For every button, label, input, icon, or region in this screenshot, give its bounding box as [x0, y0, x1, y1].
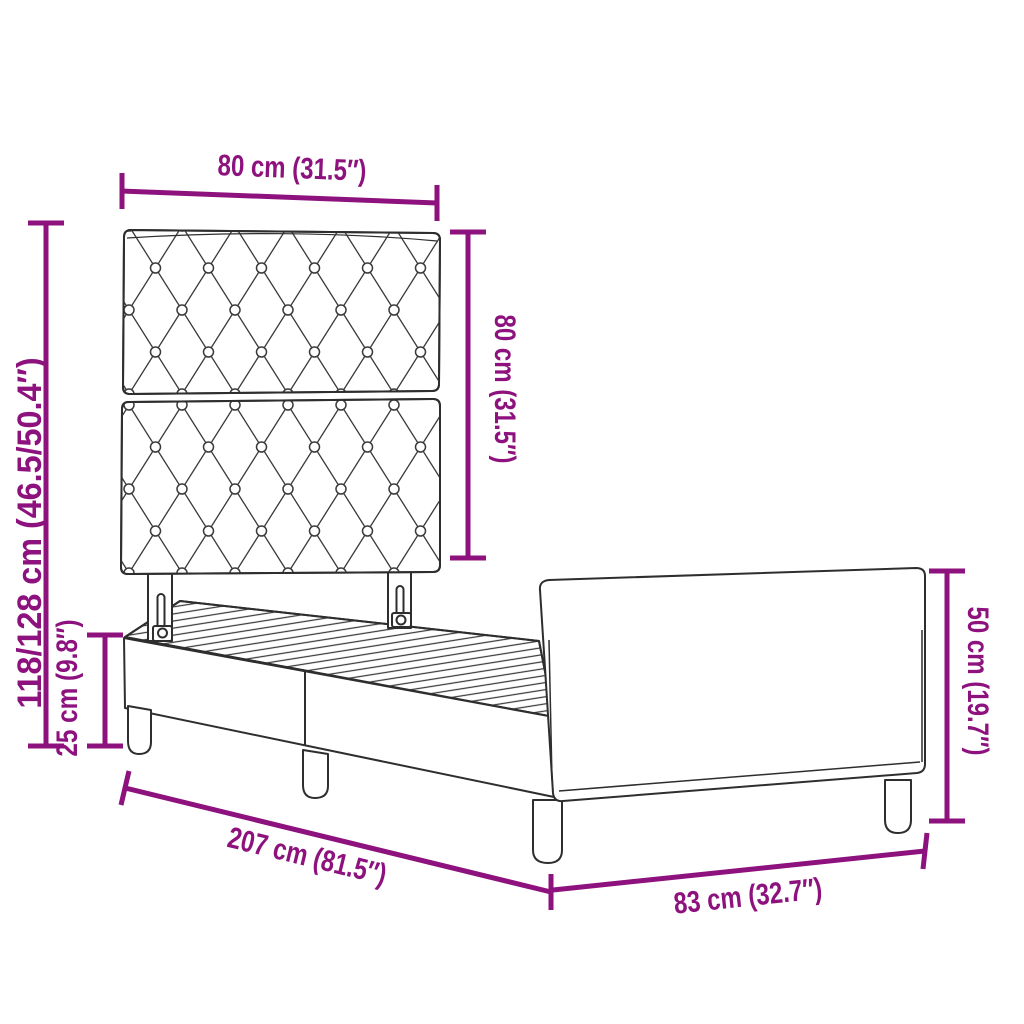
leg-foot-right [885, 780, 911, 833]
dim-base-height-line [87, 635, 123, 746]
dim-headboard-height-line [450, 232, 486, 558]
headboard-bottom-panel-tufting [121, 399, 440, 574]
bed-frame-dimension-diagram: 80 cm (31.5″) 80 cm (31.5″) 118/128 cm (… [0, 0, 1024, 1024]
leg-head [128, 706, 151, 754]
dim-footboard-height-label: 50 cm (19.7″) [957, 537, 997, 825]
leg-middle [303, 750, 328, 798]
dim-base-height-label: 25 cm (9.8″) [48, 542, 88, 834]
headboard-top-panel-tufting [123, 230, 440, 394]
dim-total-height-label: 118/128 cm (46.5/50.4″) [10, 267, 50, 799]
dim-tick [923, 833, 927, 869]
post-right-screw [397, 616, 406, 625]
dim-headboard-height-label: 80 cm (31.5″) [484, 245, 524, 533]
post-left-screw [158, 629, 167, 638]
leg-foot-left [533, 800, 562, 863]
footboard [533, 568, 925, 863]
headboard [121, 230, 440, 574]
